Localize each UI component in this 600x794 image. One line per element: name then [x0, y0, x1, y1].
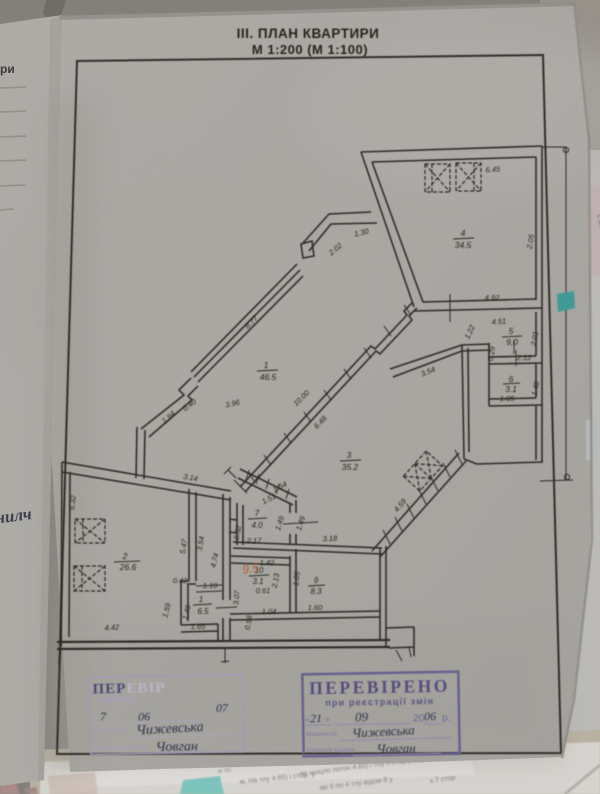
svg-text:5: 5	[509, 326, 514, 336]
svg-text:1: 1	[264, 360, 269, 370]
svg-text:Човган: Човган	[156, 739, 198, 755]
svg-text:6.5: 6.5	[197, 607, 209, 616]
svg-text:1.60: 1.60	[308, 603, 323, 612]
svg-text:М 1:200 (М 1:100): М 1:200 (М 1:100)	[252, 42, 368, 57]
svg-text:0.61: 0.61	[256, 586, 271, 595]
svg-text:при реєстрації змін: при реєстрації змін	[325, 696, 434, 708]
svg-text:Керівник відділу: Керівник відділу	[97, 742, 149, 751]
svg-text:6: 6	[509, 374, 514, 384]
svg-text:7: 7	[255, 509, 260, 518]
svg-text:34.5: 34.5	[455, 240, 472, 250]
svg-text:46.5: 46.5	[260, 372, 277, 382]
svg-text:3.1: 3.1	[252, 577, 263, 586]
svg-text:4.0: 4.0	[251, 521, 263, 530]
svg-text:4.42: 4.42	[104, 622, 120, 632]
svg-text:1.04: 1.04	[262, 607, 277, 616]
svg-text:0.42: 0.42	[173, 576, 188, 585]
svg-text:09: 09	[355, 709, 369, 724]
svg-text:ри: ри	[0, 62, 15, 76]
svg-text:Виконала: Виконала	[97, 727, 128, 735]
svg-text:Керівник відділу: Керівник відділу	[307, 745, 357, 754]
svg-text:3: 3	[347, 450, 352, 460]
svg-text:Виконала: Виконала	[306, 731, 337, 739]
svg-text:2.17: 2.17	[246, 536, 262, 545]
svg-text:3.18: 3.18	[322, 534, 338, 544]
svg-text:26.6: 26.6	[119, 562, 137, 572]
svg-text:1.05: 1.05	[500, 394, 515, 403]
svg-text:4.51: 4.51	[491, 317, 506, 327]
svg-text:2.12: 2.12	[516, 353, 532, 362]
svg-text:21: 21	[310, 711, 322, 725]
svg-text:р.: р.	[442, 713, 451, 724]
svg-text:20: 20	[413, 713, 425, 724]
svg-text:«: «	[94, 713, 99, 722]
svg-text:6.45: 6.45	[485, 164, 501, 174]
svg-text:3.1: 3.1	[505, 384, 517, 394]
svg-text:1.42: 1.42	[260, 558, 275, 567]
svg-text:1.05: 1.05	[291, 570, 302, 586]
svg-text:»: »	[110, 713, 115, 722]
svg-text:6.32: 6.32	[67, 494, 78, 510]
svg-text:06: 06	[424, 709, 436, 723]
svg-text:»: »	[325, 715, 330, 724]
svg-text:4: 4	[461, 228, 466, 238]
svg-text:06: 06	[138, 709, 150, 723]
svg-text:2: 2	[122, 551, 128, 561]
svg-text:35.2: 35.2	[342, 462, 359, 472]
svg-text:ПРИ РЕЄС: ПРИ РЕЄС	[100, 695, 139, 705]
svg-text:3.07: 3.07	[231, 589, 241, 605]
svg-text:1: 1	[199, 595, 203, 604]
svg-text:ж по: ж по	[217, 767, 231, 775]
svg-text:ІІІ. ПЛАН КВАРТИРИ: ІІІ. ПЛАН КВАРТИРИ	[237, 26, 380, 41]
svg-text:1.10: 1.10	[203, 581, 218, 590]
svg-text:8.3: 8.3	[310, 587, 322, 596]
svg-text:ПЕРЕВІРЕНО: ПЕРЕВІРЕНО	[309, 676, 450, 698]
svg-text:9,0: 9,0	[506, 337, 518, 347]
svg-text:4.92: 4.92	[485, 293, 500, 302]
svg-text:1.65: 1.65	[191, 622, 206, 631]
svg-text:9.5: 9.5	[241, 561, 260, 577]
svg-text:07: 07	[216, 701, 229, 715]
svg-text:9: 9	[314, 576, 319, 585]
